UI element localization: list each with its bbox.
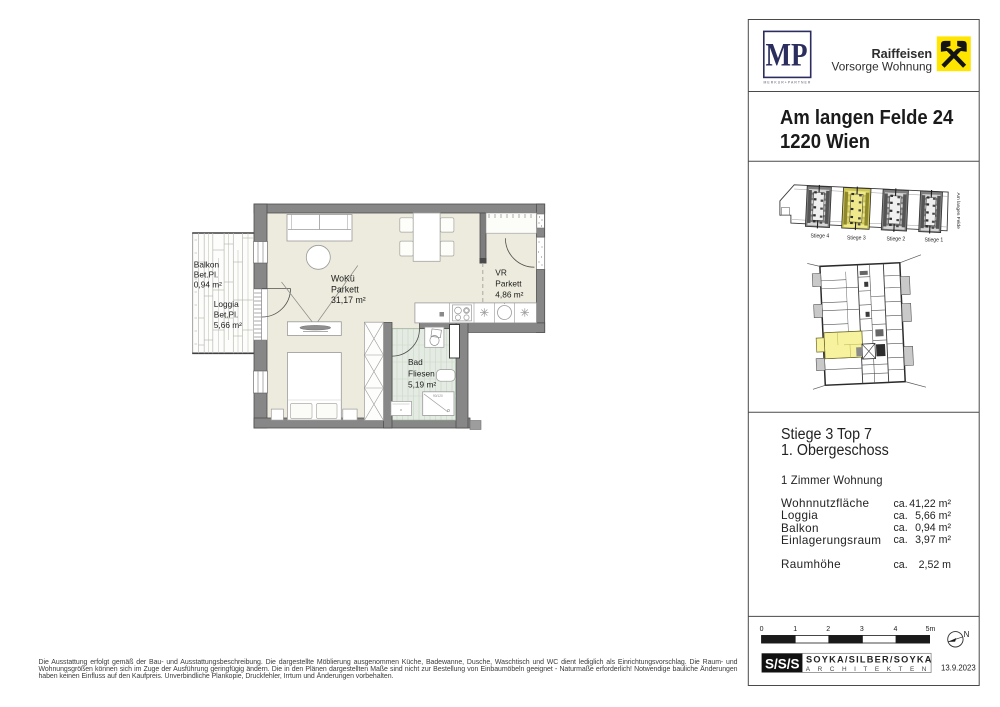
svg-text:31,17 m²: 31,17 m²	[331, 295, 366, 305]
svg-text:Balkon: Balkon	[194, 260, 220, 270]
svg-text:Stiege 1: Stiege 1	[925, 238, 944, 244]
svg-text:Parkett: Parkett	[331, 284, 359, 294]
svg-text:1: 1	[793, 626, 797, 633]
svg-text:4: 4	[894, 626, 898, 633]
svg-text:0: 0	[760, 626, 764, 633]
svg-text:ARCHITEKTEN: ARCHITEKTEN	[806, 666, 934, 673]
svg-text:SOYKA/SILBER/SOYKA: SOYKA/SILBER/SOYKA	[806, 655, 933, 665]
svg-text:3: 3	[860, 626, 864, 633]
svg-text:MERKUR+PARTNER: MERKUR+PARTNER	[764, 81, 812, 85]
svg-text:90/120: 90/120	[433, 394, 443, 398]
svg-text:4,86 m²: 4,86 m²	[495, 290, 523, 300]
svg-text:N: N	[964, 630, 970, 639]
svg-text:S/S/S: S/S/S	[765, 657, 800, 672]
svg-text:Parkett: Parkett	[495, 279, 522, 289]
svg-text:WoKü: WoKü	[331, 274, 355, 284]
svg-text:5,66 m²: 5,66 m²	[214, 320, 242, 330]
svg-text:Bad: Bad	[408, 357, 423, 367]
svg-text:Fliesen: Fliesen	[408, 369, 435, 379]
svg-text:Stiege 3: Stiege 3	[847, 236, 866, 242]
svg-text:5,19 m²: 5,19 m²	[408, 380, 436, 390]
svg-text:Bet.Pl.: Bet.Pl.	[194, 270, 218, 280]
svg-text:5m: 5m	[926, 626, 936, 633]
svg-text:2: 2	[826, 626, 830, 633]
svg-text:VR: VR	[495, 268, 507, 278]
svg-text:Vorsorge Wohnung: Vorsorge Wohnung	[831, 59, 932, 73]
svg-text:Loggia: Loggia	[214, 299, 239, 309]
svg-text:0,94 m²: 0,94 m²	[194, 280, 222, 290]
svg-text:Stiege 2: Stiege 2	[887, 237, 906, 243]
svg-text:Stiege 4: Stiege 4	[811, 234, 830, 240]
svg-text:Bet.Pl.: Bet.Pl.	[214, 310, 238, 320]
svg-text:Am langen Felde: Am langen Felde	[955, 193, 961, 230]
svg-text:MP: MP	[766, 36, 808, 73]
svg-text:13.9.2023: 13.9.2023	[941, 664, 976, 673]
